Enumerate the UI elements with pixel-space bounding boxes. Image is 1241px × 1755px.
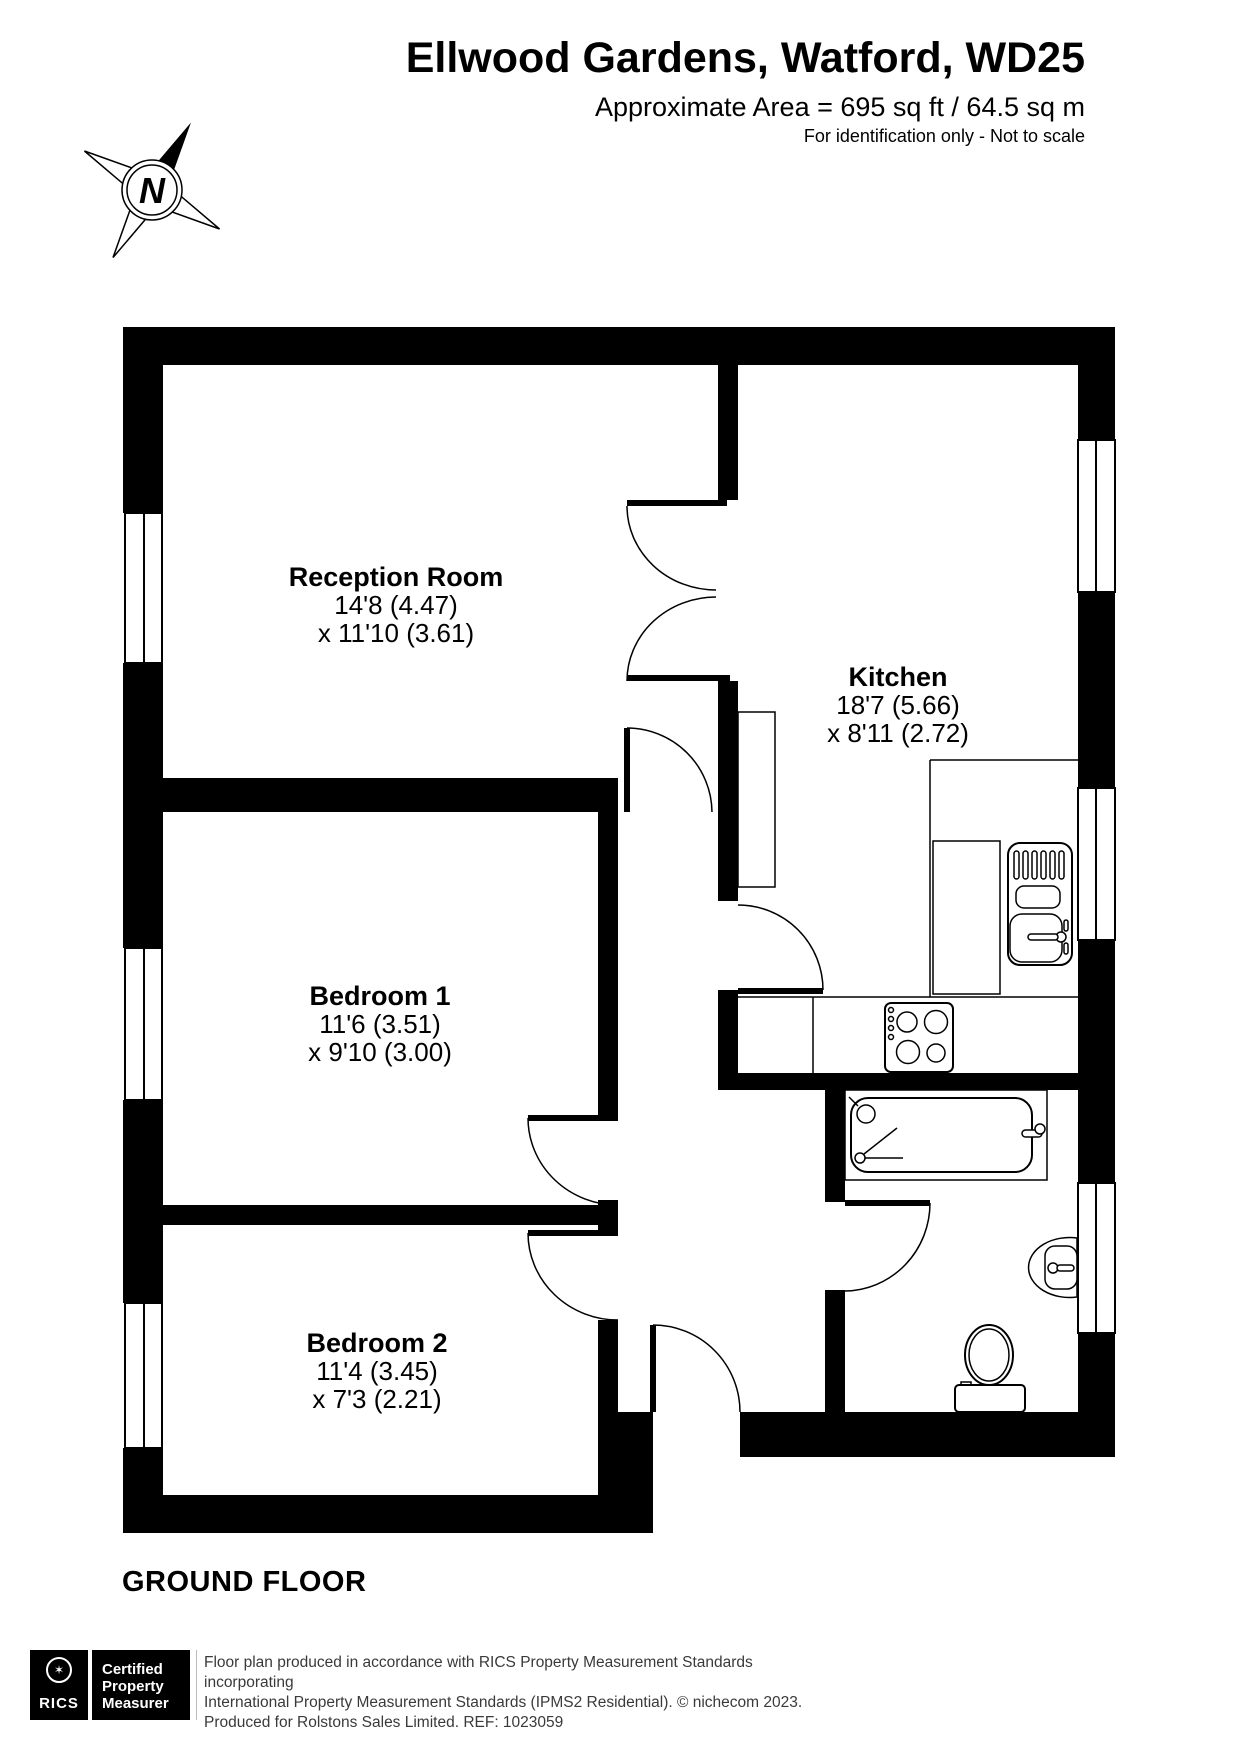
disclaimer-text: Floor plan produced in accordance with R… bbox=[204, 1653, 844, 1733]
wall-left-3 bbox=[123, 1100, 163, 1303]
wall-step bbox=[598, 1412, 653, 1495]
doors bbox=[528, 506, 930, 1412]
room-labels: Reception Room 14'8 (4.47) x 11'10 (3.61… bbox=[289, 562, 969, 1414]
north-label: N bbox=[139, 170, 166, 211]
kitchen-size2: x 8'11 (2.72) bbox=[827, 718, 969, 748]
badge-line: Property bbox=[102, 1678, 190, 1695]
label-reception-room: Reception Room 14'8 (4.47) x 11'10 (3.61… bbox=[289, 562, 504, 648]
bedroom1-size2: x 9'10 (3.00) bbox=[308, 1037, 452, 1067]
wall-bottom-right bbox=[740, 1412, 1115, 1457]
window-reception bbox=[125, 513, 162, 663]
certified-measurer-badge: Certified Property Measurer bbox=[92, 1650, 190, 1720]
disclaimer-line: International Property Measurement Stand… bbox=[204, 1693, 844, 1713]
window-kitchen-lower bbox=[1078, 788, 1115, 940]
double-door-jamb-top bbox=[627, 500, 727, 506]
bedroom1-size1: 11'6 (3.51) bbox=[319, 1009, 441, 1039]
reception-name: Reception Room bbox=[289, 562, 504, 592]
hob-icon bbox=[885, 1003, 953, 1072]
wall-top bbox=[123, 327, 1115, 365]
wash-basin-icon bbox=[1029, 1238, 1077, 1298]
bedroom2-size2: x 7'3 (2.21) bbox=[312, 1384, 441, 1414]
door-kitchen bbox=[738, 905, 823, 994]
window-kitchen-upper bbox=[1078, 440, 1115, 592]
door-reception-hall bbox=[624, 728, 712, 812]
door-bathroom bbox=[845, 1200, 930, 1291]
kitchen-sink-icon bbox=[1008, 843, 1072, 965]
bedroom2-size1: 11'4 (3.45) bbox=[316, 1356, 438, 1386]
wall-right-2 bbox=[1078, 592, 1115, 788]
wall-reception-bedroom1 bbox=[163, 778, 618, 812]
floor-label: GROUND FLOOR bbox=[122, 1566, 366, 1599]
page: { "header": { "title": "Ellwood Gardens,… bbox=[0, 0, 1241, 1755]
rics-logo: ✶ RICS bbox=[30, 1650, 88, 1720]
door-entrance bbox=[650, 1325, 740, 1412]
wall-right-3 bbox=[1078, 940, 1115, 1183]
door-bedroom2 bbox=[528, 1230, 618, 1320]
wall-bedroom1-bedroom2 bbox=[163, 1205, 598, 1225]
kitchen-size1: 18'7 (5.66) bbox=[836, 690, 960, 720]
window-bedroom2 bbox=[125, 1303, 162, 1448]
north-arrow-icon: N bbox=[45, 83, 258, 296]
double-door-jamb-bottom bbox=[627, 675, 730, 681]
wall-reception-kitchen-upper bbox=[718, 365, 738, 500]
reception-size1: 14'8 (4.47) bbox=[334, 590, 458, 620]
footer-divider bbox=[196, 1650, 197, 1720]
floorplan-canvas: N bbox=[0, 0, 1241, 1755]
rics-brand: RICS bbox=[30, 1695, 88, 1712]
window-bedroom1 bbox=[125, 948, 162, 1100]
kitchen-fixtures bbox=[738, 712, 1078, 1073]
wall-hall-bathroom-lower bbox=[825, 1290, 845, 1412]
kitchen-name: Kitchen bbox=[848, 662, 947, 692]
badge-line: Certified bbox=[102, 1661, 190, 1678]
label-kitchen: Kitchen 18'7 (5.66) x 8'11 (2.72) bbox=[827, 662, 969, 748]
wall-right-1 bbox=[1078, 327, 1115, 440]
wall-kitchen-bathroom bbox=[718, 1073, 1078, 1090]
wall-left-1 bbox=[123, 327, 163, 513]
wall-hall-kitchen-mid bbox=[718, 681, 738, 901]
window-bathroom bbox=[1078, 1183, 1115, 1333]
badge-line: Measurer bbox=[102, 1695, 190, 1712]
door-bedroom1 bbox=[528, 1115, 618, 1205]
wall-bottom-left bbox=[123, 1495, 653, 1533]
toilet-icon bbox=[955, 1325, 1025, 1412]
bath-icon bbox=[845, 1090, 1047, 1180]
double-door-reception-kitchen bbox=[627, 506, 716, 681]
wall-hall-left-lower bbox=[598, 1320, 618, 1412]
label-bedroom2: Bedroom 2 11'4 (3.45) x 7'3 (2.21) bbox=[306, 1328, 447, 1414]
rics-emblem-icon: ✶ bbox=[46, 1657, 72, 1683]
bedroom2-name: Bedroom 2 bbox=[306, 1328, 447, 1358]
tall-unit-icon bbox=[738, 712, 775, 887]
reception-size2: x 11'10 (3.61) bbox=[318, 618, 474, 648]
wall-hall-left-upper bbox=[598, 812, 618, 1115]
label-bedroom1: Bedroom 1 11'6 (3.51) x 9'10 (3.00) bbox=[308, 981, 452, 1067]
wall-hall-bathroom-upper bbox=[825, 1090, 845, 1202]
wall-right-4 bbox=[1078, 1333, 1115, 1457]
bedroom1-name: Bedroom 1 bbox=[309, 981, 450, 1011]
wall-left-2 bbox=[123, 663, 163, 948]
bathroom-fixtures bbox=[845, 1090, 1077, 1412]
disclaimer-line: Produced for Rolstons Sales Limited. REF… bbox=[204, 1713, 844, 1733]
disclaimer-line: Floor plan produced in accordance with R… bbox=[204, 1653, 844, 1693]
